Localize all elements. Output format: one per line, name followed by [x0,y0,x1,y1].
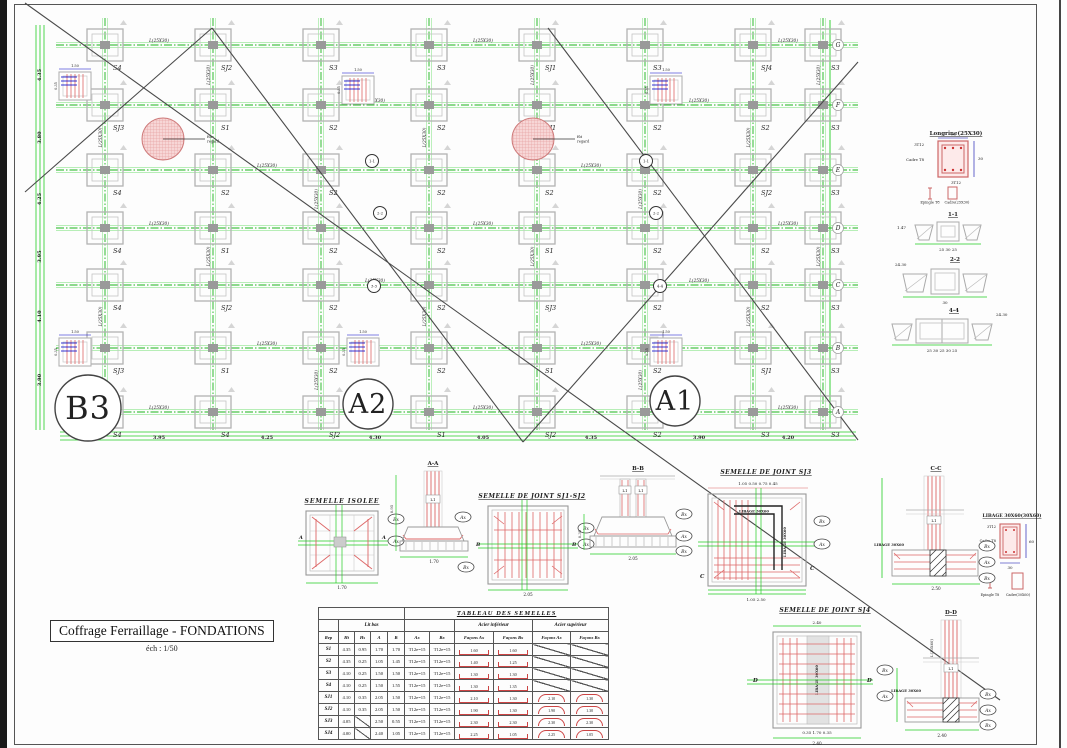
svg-text:S1: S1 [545,367,554,375]
section-mark: C [810,566,815,572]
table-cell: T12e=15 [430,716,455,728]
column-label: L1 [638,488,643,493]
detail-sj3: SEMELLE DE JOINT SJ3 1.05 0.50 0.75 0.45… [696,458,996,608]
section-mark: A [381,535,386,541]
table-cell: Façons Bx [571,632,609,644]
footing: SJ2 [195,260,235,312]
svg-text:L(25X30): L(25X30) [206,65,211,86]
svg-text:1.50: 1.50 [71,64,79,68]
svg-text:L(25X30): L(25X30) [777,38,798,43]
svg-text:L(25X30): L(25X30) [530,246,535,267]
svg-text:L(25X30): L(25X30) [256,163,277,168]
footing: S4 [87,145,127,197]
tag-ax: Ax [582,542,589,548]
section-mark: D [752,678,758,684]
svg-text:S1: S1 [437,431,446,439]
section-mark: C [700,574,705,580]
tableau-des-semelles: TABLEAU DES SEMELLESLit basAcier inférie… [318,607,608,740]
table-cell: T12e=15 [405,644,430,656]
footing: S2 [411,203,451,255]
table-cell: Rep [319,632,339,644]
svg-text:1-1: 1-1 [643,159,649,164]
table-cell: 1.30 [494,704,533,716]
detail-footing: 1.500.35 [54,64,91,100]
svg-text:SJ4: SJ4 [761,64,772,72]
footing: S2 [735,260,775,312]
footing: S2 [303,323,343,375]
table-row: SJ14.100.352.051.50T12e=15T12e=152.101.3… [319,692,609,704]
detail-footings: 1.500.351.500.351.500.351.500.351.500.35… [54,64,682,366]
table-cell: 1.50 [388,692,405,704]
axis-grid [56,18,858,430]
table-cell [355,716,371,728]
svg-text:3.90: 3.90 [37,373,43,386]
svg-text:SJ2: SJ2 [221,64,232,72]
dim: 2.05 [523,592,533,597]
table-cell: 4.10 [339,668,355,680]
tag-ax: Ax [818,542,825,548]
table-cell: 0.25 [355,668,371,680]
dim: 0.35 [577,529,582,538]
svg-text:C: C [836,282,841,289]
svg-text:S2: S2 [221,189,230,197]
svg-text:L(25X30): L(25X30) [777,405,798,410]
table-cell: Acier supérieur [533,620,609,632]
column-label: L1 [948,666,953,671]
svg-text:S3: S3 [831,431,840,439]
svg-text:0.35: 0.35 [342,348,346,356]
table-cell [533,656,571,668]
svg-text:fût: fût [577,135,583,139]
table-cell: 1.60 [455,644,494,656]
table-row: S14.350.951.701.70T12e=15T12e=151.601.60 [319,644,609,656]
libage-label: LIBAGE 30X60 [874,543,904,547]
detail-footing: 1.500.35 [54,330,91,366]
svg-text:4.20: 4.20 [782,435,795,441]
svg-text:0.35: 0.35 [54,348,58,356]
svg-text:S3: S3 [831,304,840,312]
svg-text:0.35: 0.35 [645,86,649,94]
table-row: SJ44.002.401.05T12e=15T12e=152.251.052.2… [319,728,609,740]
svg-text:L(25X30): L(25X30) [98,306,103,327]
table-cell: 1.30 [494,692,533,704]
tag-bx: Bx [983,544,990,550]
svg-text:S3: S3 [437,64,446,72]
table-cell: 2.10 [455,692,494,704]
table-cell: 1.50 [388,704,405,716]
rebar-label: 3T12 [914,142,924,147]
detail-section-1-1: 1-1 1.47 25 30 25 [893,208,1013,254]
footing: SJ3 [519,260,559,312]
table-cell: 1.30 [571,704,609,716]
footing: SJ3 [87,80,127,132]
table-cell: S4 [319,680,339,692]
svg-text:L(25X30): L(25X30) [816,65,821,86]
table-cell: 2.30 [455,716,494,728]
svg-text:S4: S4 [221,431,230,439]
table-cell [405,620,455,632]
footing: S1 [195,80,235,132]
svg-text:S2: S2 [653,247,662,255]
table-cell: T12e=15 [405,692,430,704]
section-title: D-D [945,610,957,616]
table-cell: Façons Bx [494,632,533,644]
tag-bx: Bx [983,576,990,582]
svg-text:S2: S2 [329,304,338,312]
section-title: B-B [632,466,644,472]
table-row: S24.350.251.051.45T12e=15T12e=151.401.25 [319,656,609,668]
footing: S2 [303,260,343,312]
svg-text:F: F [835,102,841,109]
section-title: 4-4 [949,308,959,314]
svg-text:L(25X30): L(25X30) [530,65,535,86]
table-cell: 0.35 [355,704,371,716]
table-cell: Ht [339,632,355,644]
table-cell: SJ2 [319,704,339,716]
semelles-table: TABLEAU DES SEMELLESLit basAcier inférie… [318,607,609,740]
svg-text:L(25X30): L(25X30) [816,246,821,267]
drawing-scale: éch : 1/50 [50,644,274,653]
table-cell: T12e=15 [430,680,455,692]
detail-section-4-4: 4-4 24.30 25 30 25 30 25 [878,303,1038,359]
svg-text:S2: S2 [329,124,338,132]
table-cell: 4.10 [339,704,355,716]
table-cell: S3 [319,668,339,680]
detail-semelle-isolee: SEMELLE ISOLEE A A Bx Ax 1.70 A-A [296,455,476,590]
svg-text:SJ2: SJ2 [545,431,556,439]
table-cell [319,620,339,632]
svg-text:SJ3: SJ3 [545,304,556,312]
footing: S1 [411,387,451,439]
table-cell: Acier inférieur [455,620,533,632]
svg-text:3-3: 3-3 [371,284,378,289]
svg-text:1.50: 1.50 [662,68,670,72]
dim: 24.30 [996,312,1008,317]
table-cell: T12e=15 [430,704,455,716]
footing: S3 [627,20,667,72]
table-cell: T12e=15 [430,644,455,656]
section-mark: A [298,535,303,541]
svg-text:S3: S3 [761,431,770,439]
section-title: 1-1 [948,212,958,218]
svg-text:L(25X30): L(25X30) [148,405,169,410]
svg-text:L(25X30): L(25X30) [638,189,643,210]
table-cell: Façons Ax [455,632,494,644]
svg-text:1.50: 1.50 [71,330,79,334]
table-cell: 1.30 [571,692,609,704]
dim: 25 30 25 30 25 [927,348,958,353]
footing: S2 [411,323,451,375]
footing: S1 [519,203,559,255]
svg-text:S3: S3 [831,247,840,255]
table-cell: 2.40 [371,728,388,740]
table-cell: 2.50 [371,716,388,728]
table-cell: 1.25 [494,656,533,668]
footing: SJ3 [87,323,127,375]
footing: S4 [87,20,127,72]
table-cell: 4.05 [339,716,355,728]
footing: S2 [735,203,775,255]
svg-text:L(25X30): L(25X30) [472,221,493,226]
svg-text:SJ2: SJ2 [329,431,340,439]
column-label: L1 [430,497,435,502]
table-cell: T12e=15 [430,668,455,680]
svg-text:1.50: 1.50 [662,330,670,334]
table-row: SJ24.100.352.051.50T12e=15T12e=151.901.3… [319,704,609,716]
svg-text:S2: S2 [329,247,338,255]
svg-text:L(25X30): L(25X30) [256,341,277,346]
table-cell: TABLEAU DES SEMELLES [405,608,609,620]
section-title: A-A [427,461,440,467]
svg-text:S3: S3 [831,64,840,72]
svg-text:D: D [835,225,841,232]
table-cell: T12e=15 [430,656,455,668]
footing: S1 [195,323,235,375]
footing: SJ2 [735,145,775,197]
table-cell: 1.70 [371,644,388,656]
dim: 1.70 [337,585,347,590]
section-title: C-C [930,466,942,472]
detail-title: Longrine(25X30) [930,130,983,137]
dim: 25 [950,133,956,138]
table-cell: 1.05 [388,728,405,740]
tag-ax: Ax [680,534,687,540]
table-cell: B [388,632,405,644]
svg-text:A1: A1 [655,386,695,417]
table-cell [355,728,371,740]
column-label: L1 [622,488,627,493]
rebar-label: 3T12 [951,180,961,185]
dim: 0.95 [389,504,394,513]
table-cell: 0.55 [388,716,405,728]
footing: SJ2 [303,387,343,439]
libage-label: LIBAGE 30X60 [891,689,921,693]
svg-text:A2: A2 [348,389,388,420]
table-cell: 1.70 [388,644,405,656]
svg-text:S3: S3 [831,189,840,197]
svg-text:4.25: 4.25 [261,435,274,441]
svg-text:S2: S2 [437,124,446,132]
svg-text:S2: S2 [761,304,770,312]
svg-text:L(25X30): L(25X30) [148,38,169,43]
svg-text:S2: S2 [761,124,770,132]
caption: Cadre(25X30) [945,201,971,205]
table-cell: 0.25 [355,680,371,692]
tag-bx: Bx [818,519,825,525]
svg-text:4.05: 4.05 [477,435,490,441]
detail-footing: 1.500.35 [342,330,379,366]
section-mark: D [866,678,872,684]
svg-text:SJ3: SJ3 [113,367,124,375]
table-cell: 2.25 [533,728,571,740]
table-cell: Hs [355,632,371,644]
tag-bx: Bx [881,668,888,674]
table-cell: T12e=15 [405,668,430,680]
table-cell: 1.60 [494,644,533,656]
table-cell: SJ3 [319,716,339,728]
svg-text:SJ2: SJ2 [221,304,232,312]
dim: 1.47 [897,225,906,230]
svg-text:S2: S2 [653,189,662,197]
table-cell [571,644,609,656]
dim: 2.40 [812,741,822,746]
table-cell: Façons Ax [533,632,571,644]
table-cell: 2.30 [533,716,571,728]
footing: S2 [411,80,451,132]
table-cell [533,680,571,692]
dim: 30 [1007,565,1013,570]
svg-text:2-2: 2-2 [653,211,660,216]
footing: S4 [87,203,127,255]
svg-text:L(25X30): L(25X30) [472,405,493,410]
footing: S2 [303,203,343,255]
table-cell: 0.35 [355,692,371,704]
dim: 2.50 [931,586,941,591]
footing: S2 [411,260,451,312]
section-mark: B [571,542,576,548]
dim-red: 0.35 1.70 0.35 [802,730,832,735]
tag-ax: Ax [459,515,466,521]
table-cell: T12e=15 [430,692,455,704]
rebar-label: Cadre T8 [906,157,924,162]
table-cell: T12e=15 [405,728,430,740]
tag-bx: Bx [984,692,991,698]
table-cell [571,668,609,680]
svg-text:L(25X30): L(25X30) [580,341,601,346]
footings: S4SJ2S3S3SJ1S3SJ4S3SJ3S1S2S2SJ1S2S2S3S4S… [87,20,845,439]
table-cell: 2.30 [571,716,609,728]
svg-text:L(25X30): L(25X30) [422,127,427,148]
footing: S2 [303,145,343,197]
detail-footing: 1.500.35 [337,68,374,104]
svg-text:S4: S4 [113,189,122,197]
dim: 2.40 [937,733,947,738]
svg-text:S4: S4 [113,247,122,255]
table-cell: 4.35 [339,656,355,668]
svg-text:S2: S2 [437,189,446,197]
svg-text:SJ3: SJ3 [113,124,124,132]
table-cell: 1.30 [455,680,494,692]
svg-text:4.35: 4.35 [37,68,43,81]
table-cell: 0.25 [355,656,371,668]
footing: SJ1 [519,20,559,72]
svg-text:L(25X30): L(25X30) [777,221,798,226]
svg-text:L(25X30): L(25X30) [206,246,211,267]
svg-text:1-1: 1-1 [369,159,375,164]
svg-text:3.90: 3.90 [693,435,706,441]
table-cell: 2.05 [371,704,388,716]
table-cell: T12e=15 [405,716,430,728]
svg-text:S4: S4 [113,431,122,439]
table-cell [533,644,571,656]
svg-text:G: G [836,42,841,49]
svg-text:S2: S2 [437,367,446,375]
table-cell: 1.90 [533,704,571,716]
libage-label: LIBAGE 30X60 [783,527,787,557]
svg-text:4.30: 4.30 [369,435,382,441]
svg-text:A: A [835,409,841,416]
svg-text:4-4: 4-4 [657,284,664,289]
svg-text:S1: S1 [221,247,230,255]
table-cell: T12e=15 [405,704,430,716]
tag-bx: Bx [582,526,589,532]
svg-text:S3: S3 [329,64,338,72]
svg-text:S2: S2 [653,304,662,312]
footing: SJ1 [735,323,775,375]
svg-text:E: E [835,167,841,174]
column-label: L1 [931,518,936,523]
footing: S3 [303,20,343,72]
table-cell: T12e=15 [405,656,430,668]
table-cell: 4.10 [339,692,355,704]
footing: SJ4 [735,20,775,72]
footing: S2 [411,145,451,197]
table-cell: 1.05 [371,656,388,668]
caption: Cadre(30X60) [1006,593,1031,597]
table-cell: 1.30 [455,668,494,680]
tag-bx: Bx [984,723,991,729]
table-cell: 1.50 [371,680,388,692]
detail-title: SEMELLE DE JOINT SJ3 [720,469,811,476]
title-block: Coffrage Ferraillage - FONDATIONS éch : … [50,620,274,653]
svg-text:L(25X30): L(25X30) [472,38,493,43]
svg-text:L(25X30): L(25X30) [688,98,709,103]
tag-bx: Bx [462,565,469,571]
svg-text:L(25X30): L(25X30) [148,221,169,226]
footing: S4 [87,260,127,312]
svg-text:S2: S2 [653,124,662,132]
svg-text:4.10: 4.10 [37,310,43,323]
table-cell: 1.30 [494,668,533,680]
detail-title: SEMELLE DE JOINT SJ1-SJ2 [478,493,585,500]
table-cell: 1.40 [455,656,494,668]
table-cell: 1.05 [494,728,533,740]
svg-text:L(25X30): L(25X30) [638,370,643,391]
svg-text:0.35: 0.35 [54,82,58,90]
svg-text:S2: S2 [329,367,338,375]
detail-sj1-sj2: SEMELLE DE JOINT SJ1-SJ2 B B Bx Ax 2.05 … [470,456,692,598]
footing: S3 [735,387,775,439]
svg-text:S2: S2 [437,304,446,312]
svg-text:S1: S1 [221,124,230,132]
svg-text:1.50: 1.50 [354,68,362,72]
table-cell: T12e=15 [405,680,430,692]
table-cell: S1 [319,644,339,656]
table-cell [319,608,405,620]
dim: 2.40 [813,620,822,625]
svg-text:S2: S2 [653,367,662,375]
table-cell: 1.05 [571,728,609,740]
svg-text:2-2: 2-2 [377,211,384,216]
table-cell [571,680,609,692]
tag-ax: Ax [984,708,991,714]
footing: S1 [519,323,559,375]
dim: 60 [1029,539,1035,544]
svg-text:L(25X30): L(25X30) [688,278,709,283]
libage-label: LIBAGE 30X60 [739,510,769,514]
detail-title: SEMELLE ISOLEE [305,498,380,505]
tag-ax: Ax [983,560,990,566]
table-cell: 0.95 [355,644,371,656]
detail-sj4: SEMELLE DE JOINT SJ4 2.40 LIBAGE 30X60 D… [745,598,1005,748]
table-cell: 1.50 [371,668,388,680]
section-mark: B [475,542,480,548]
svg-text:S3: S3 [831,367,840,375]
detail-longrine: Longrine(25X30) 3T12 Cadre T8 3T12 25 30… [890,126,1020,204]
dim: 1.70 [429,559,439,564]
svg-text:3.95: 3.95 [37,250,43,263]
table-cell: Ax [405,632,430,644]
